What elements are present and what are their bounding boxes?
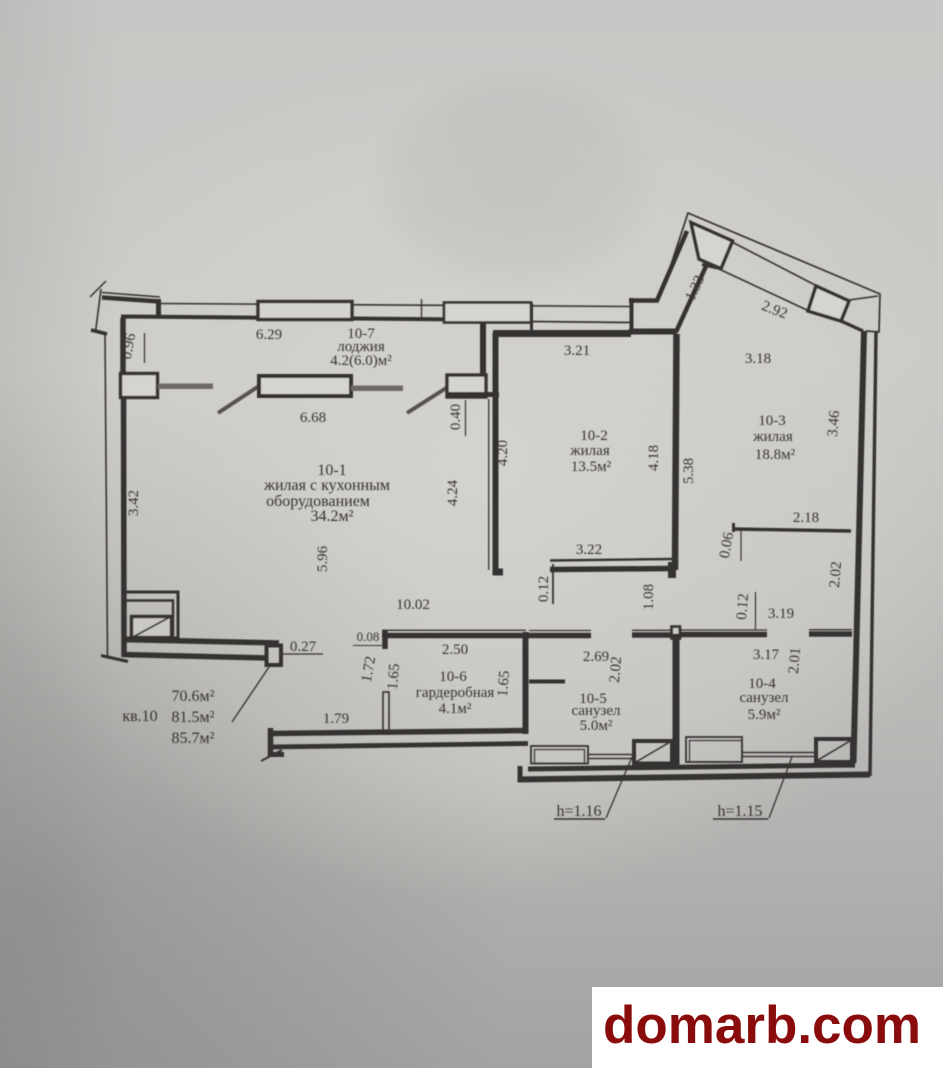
svg-text:жилая: жилая: [752, 429, 793, 445]
svg-text:10.02: 10.02: [396, 597, 430, 613]
svg-text:3.18: 3.18: [745, 351, 771, 367]
svg-text:4.1м²: 4.1м²: [439, 701, 472, 717]
svg-text:2.02: 2.02: [827, 561, 845, 589]
svg-text:кв.10: кв.10: [122, 708, 157, 725]
svg-text:4.24: 4.24: [445, 479, 461, 506]
svg-text:6.29: 6.29: [256, 327, 282, 343]
svg-text:6.68: 6.68: [300, 410, 326, 426]
svg-text:18.8м²: 18.8м²: [755, 447, 796, 463]
svg-text:85.7м²: 85.7м²: [172, 730, 215, 747]
svg-text:domarb.com: domarb.com: [603, 996, 921, 1055]
svg-text:3.46: 3.46: [825, 409, 843, 437]
svg-text:3.42: 3.42: [126, 490, 142, 516]
svg-text:3.22: 3.22: [576, 542, 602, 558]
svg-text:0.12: 0.12: [734, 593, 752, 621]
svg-text:1.79: 1.79: [323, 711, 349, 727]
svg-text:10-2: 10-2: [580, 428, 608, 444]
svg-text:1.08: 1.08: [641, 584, 657, 610]
svg-text:10-3: 10-3: [758, 413, 786, 429]
svg-text:2.50: 2.50: [442, 642, 468, 658]
svg-text:4.20: 4.20: [495, 440, 511, 466]
svg-text:0.27: 0.27: [290, 639, 317, 655]
svg-text:санузел: санузел: [739, 690, 789, 706]
svg-text:10-6: 10-6: [439, 669, 467, 685]
svg-text:3.21: 3.21: [564, 343, 590, 359]
svg-text:5.38: 5.38: [681, 458, 697, 484]
svg-text:h=1.15: h=1.15: [717, 803, 762, 820]
svg-text:0.40: 0.40: [448, 404, 464, 430]
svg-text:0.08: 0.08: [357, 629, 380, 644]
svg-text:1.65: 1.65: [385, 663, 403, 691]
svg-text:2.02: 2.02: [607, 656, 625, 684]
svg-text:0.12: 0.12: [536, 576, 552, 602]
svg-text:гардеробная: гардеробная: [416, 685, 495, 701]
svg-text:5.0м²: 5.0м²: [580, 718, 613, 734]
svg-text:1.65: 1.65: [495, 670, 513, 698]
svg-text:4.18: 4.18: [646, 445, 662, 471]
svg-text:жилая: жилая: [569, 443, 610, 459]
svg-text:h=1.16: h=1.16: [556, 803, 601, 820]
svg-text:3.19: 3.19: [768, 606, 794, 622]
svg-text:3.17: 3.17: [753, 647, 780, 663]
svg-text:санузел: санузел: [571, 703, 621, 719]
svg-text:5.96: 5.96: [315, 545, 331, 572]
svg-text:2.69: 2.69: [583, 649, 609, 665]
svg-text:жилая с кухонным: жилая с кухонным: [263, 477, 390, 494]
svg-text:34.2м²: 34.2м²: [311, 508, 354, 525]
svg-text:2.18: 2.18: [793, 510, 819, 526]
svg-text:70.6м²: 70.6м²: [172, 688, 215, 705]
svg-text:81.5м²: 81.5м²: [172, 709, 215, 726]
svg-text:13.5м²: 13.5м²: [571, 459, 612, 475]
svg-text:4.2(6.0)м²: 4.2(6.0)м²: [330, 353, 392, 369]
svg-text:2.01: 2.01: [786, 647, 804, 675]
svg-text:5.9м²: 5.9м²: [748, 707, 781, 723]
